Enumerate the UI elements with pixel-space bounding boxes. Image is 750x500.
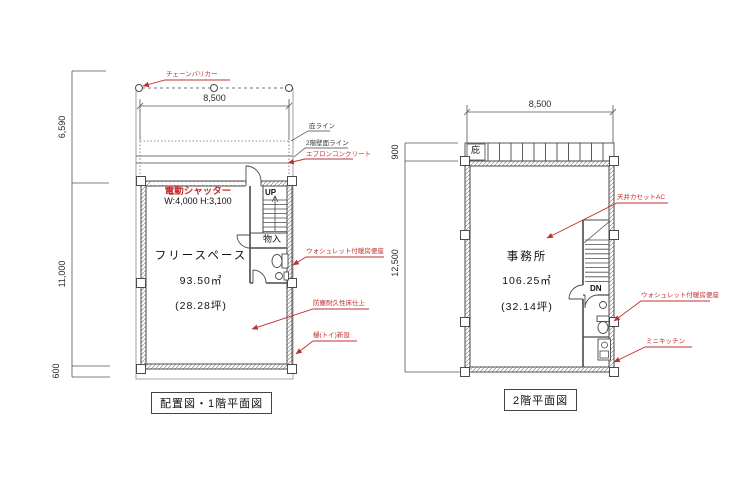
plan2-building-walls <box>465 161 614 372</box>
plan1-area-m2: 93.50㎡ <box>150 276 252 288</box>
chain-barrier-line <box>136 85 294 92</box>
plan2-eave-strip <box>465 143 614 161</box>
plan1-dim-6590: 6,590 <box>57 116 67 139</box>
plan1-width-dimension: 8,500 <box>140 94 289 104</box>
plan1-left-dimension <box>72 71 110 377</box>
plan1-dim-600: 600 <box>51 363 61 378</box>
plan2-columns <box>461 157 619 377</box>
plan1-dim-11000: 11,000 <box>57 261 67 288</box>
floor-plan-drawing: チェーンバリカー 8,500 庇ライン 2階壁面ライン エプロンコンクリート 電… <box>0 0 750 500</box>
chain-barrier-label: チェーンバリカー <box>166 71 218 78</box>
plan1-top-dimension <box>137 99 292 140</box>
plan2-left-dimension <box>405 143 460 372</box>
plan1-washlet-label: ウォシュレット付暖房便座 <box>306 248 384 255</box>
mini-kitchen-label: ミニキッチン <box>646 338 685 345</box>
up-label: UP <box>265 189 276 198</box>
plan2-width-dimension: 8,500 <box>467 100 613 110</box>
eave-line-label: 庇ライン <box>309 123 335 130</box>
eave-label: 庇 <box>471 146 480 156</box>
downspout-label: 樋(トイ)新設 <box>313 332 350 339</box>
plan2-dim-900: 900 <box>390 144 400 159</box>
plan2-room-name: 事務所 <box>478 251 576 264</box>
storage-label: 物入 <box>263 235 281 245</box>
plan1-room-name: フリースペース <box>150 250 252 263</box>
plan2-top-dimension <box>464 105 616 143</box>
plan2-dim-12500: 12,500 <box>390 249 400 277</box>
plan1-caption: 配置図・1階平面図 <box>151 392 272 414</box>
ceiling-ac-label: 天井カセットAC <box>617 194 665 201</box>
plan2-caption: 2階平面図 <box>504 389 577 411</box>
apron-concrete-label: エプロンコンクリート <box>306 151 371 158</box>
plan2-area-m2: 106.25㎡ <box>478 276 576 288</box>
plan2-area-tsubo: (32.14坪) <box>478 302 576 314</box>
shutter-size-label: W:4,000 H:3,100 <box>148 197 248 207</box>
plan2-washlet-label: ウォシュレット付暖房便座 <box>641 292 719 299</box>
plan1-area-tsubo: (28.28坪) <box>150 301 252 313</box>
floor-finish-label: 防塵耐久性床仕上 <box>313 300 365 307</box>
plan1-eave-dotted-line <box>140 141 289 179</box>
dn-label: DN <box>590 285 602 294</box>
second-floor-wall-line-label: 2階壁面ライン <box>306 140 349 147</box>
